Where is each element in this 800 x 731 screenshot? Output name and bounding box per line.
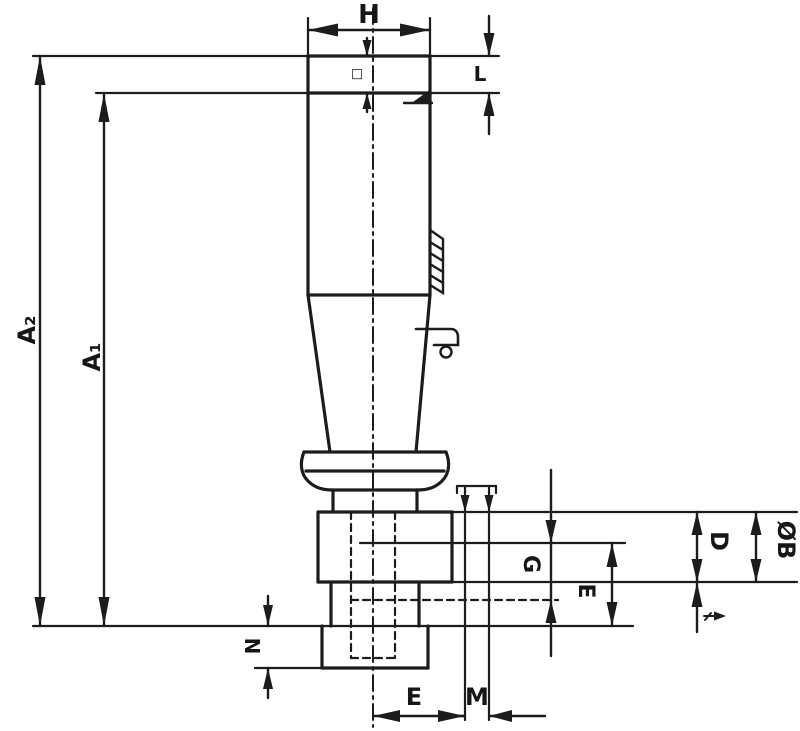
dim-label-h: H: [358, 2, 380, 28]
hidden-lines: [351, 512, 558, 658]
dim-label-g: G: [519, 555, 541, 573]
dimension-lines: [40, 16, 756, 716]
dim-label-m: M: [465, 685, 489, 709]
chamfer-mark-icon: [413, 89, 431, 102]
dim-label-a1: A₁: [80, 342, 104, 371]
knurl-hatch: [430, 230, 443, 293]
dim-label-l: L: [474, 64, 487, 84]
dim-label-e-right: E: [574, 583, 596, 598]
arrowheads: [35, 24, 762, 723]
dim-label-n: N: [242, 638, 262, 655]
part-outline: [301, 56, 452, 668]
square-symbol-label: □: [351, 68, 363, 81]
dim-label-e-bottom: E: [406, 685, 422, 709]
reference-lines: [33, 18, 797, 720]
dim-label-d: D: [707, 531, 731, 551]
travel-arrow-icon: [704, 612, 726, 621]
clip-feature: [416, 329, 458, 358]
technical-drawing-canvas: H L A₂ A₁ □ G E D ØB N E M const data = …: [0, 0, 800, 731]
drawing-geometry: [0, 0, 800, 731]
dim-label-a2: A₂: [15, 315, 39, 344]
dim-label-ob: ØB: [774, 521, 798, 560]
